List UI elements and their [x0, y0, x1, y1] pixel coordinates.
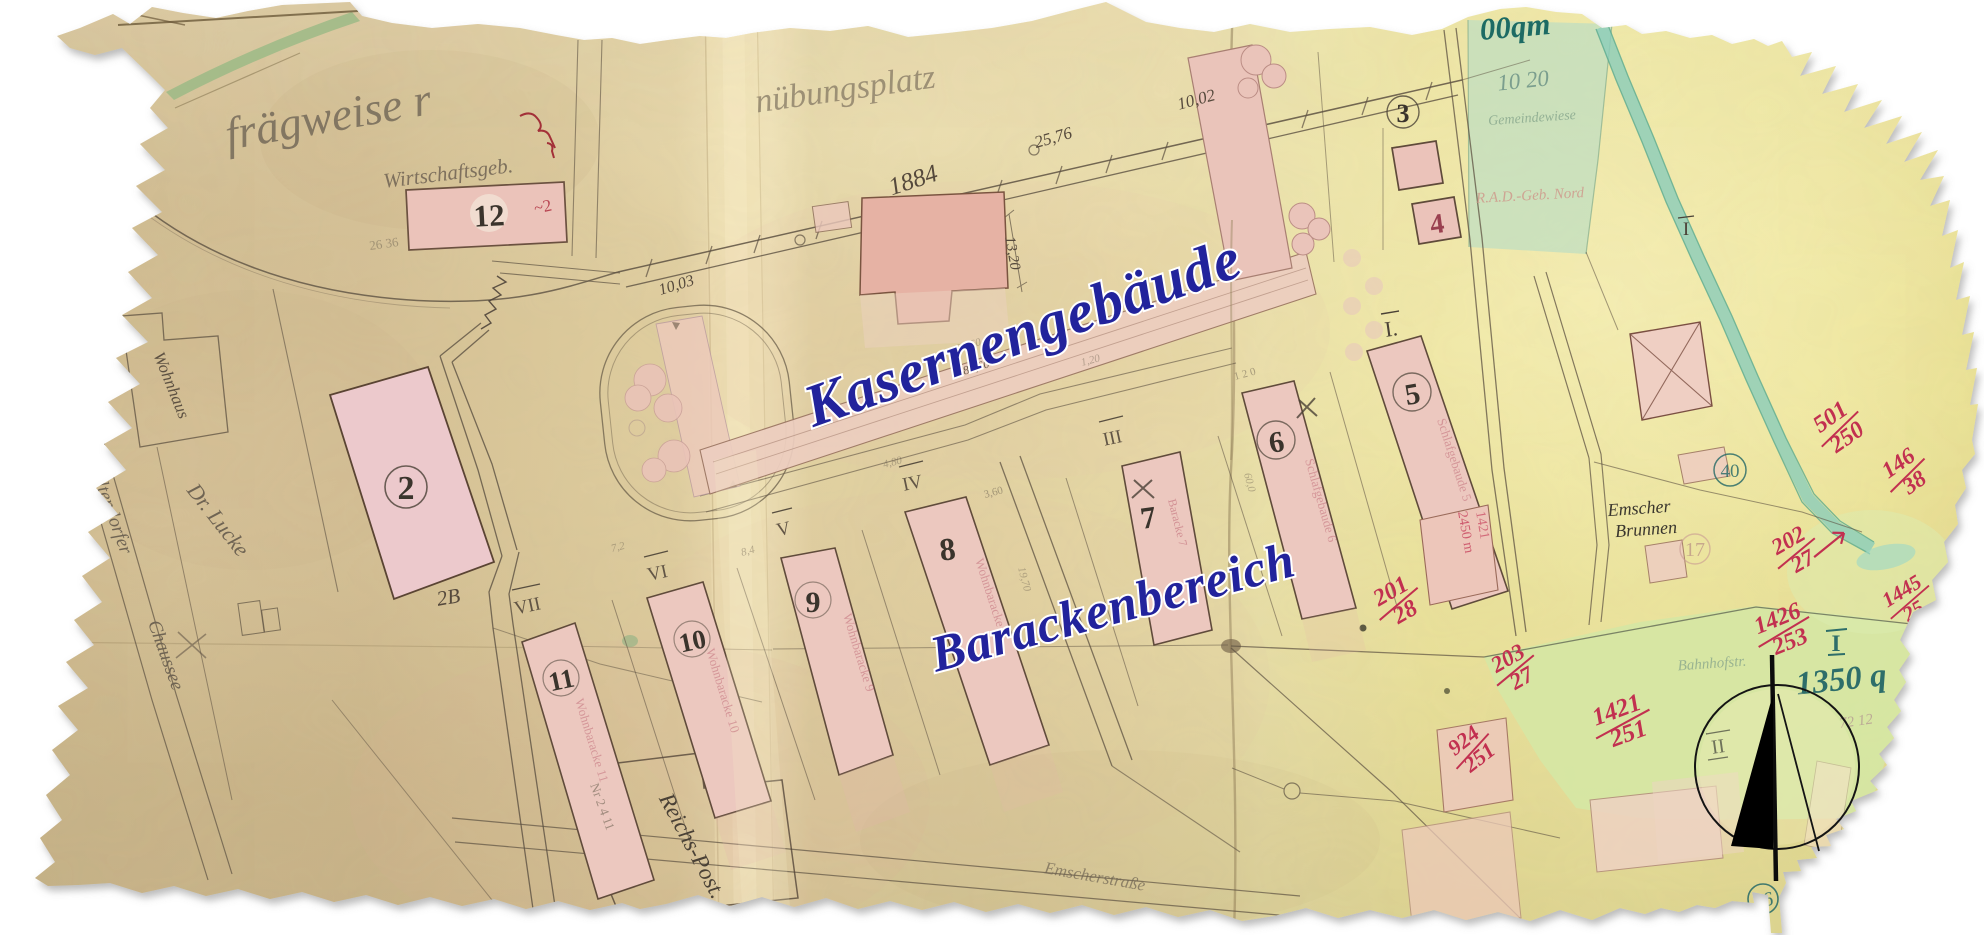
svg-text:2: 2 [398, 470, 415, 507]
svg-text:00qm: 00qm [1478, 6, 1551, 47]
svg-text:2B: 2B [435, 583, 462, 611]
svg-text:I: I [1832, 631, 1841, 656]
svg-text:40: 40 [1721, 461, 1740, 482]
svg-text:12: 12 [473, 197, 506, 234]
svg-text:17: 17 [1685, 539, 1705, 561]
svg-text:9: 9 [806, 586, 821, 619]
svg-text:3: 3 [1397, 99, 1410, 128]
svg-text:I: I [1683, 219, 1689, 240]
svg-text:VI: VI [646, 561, 670, 586]
svg-text:36: 36 [1752, 888, 1774, 912]
